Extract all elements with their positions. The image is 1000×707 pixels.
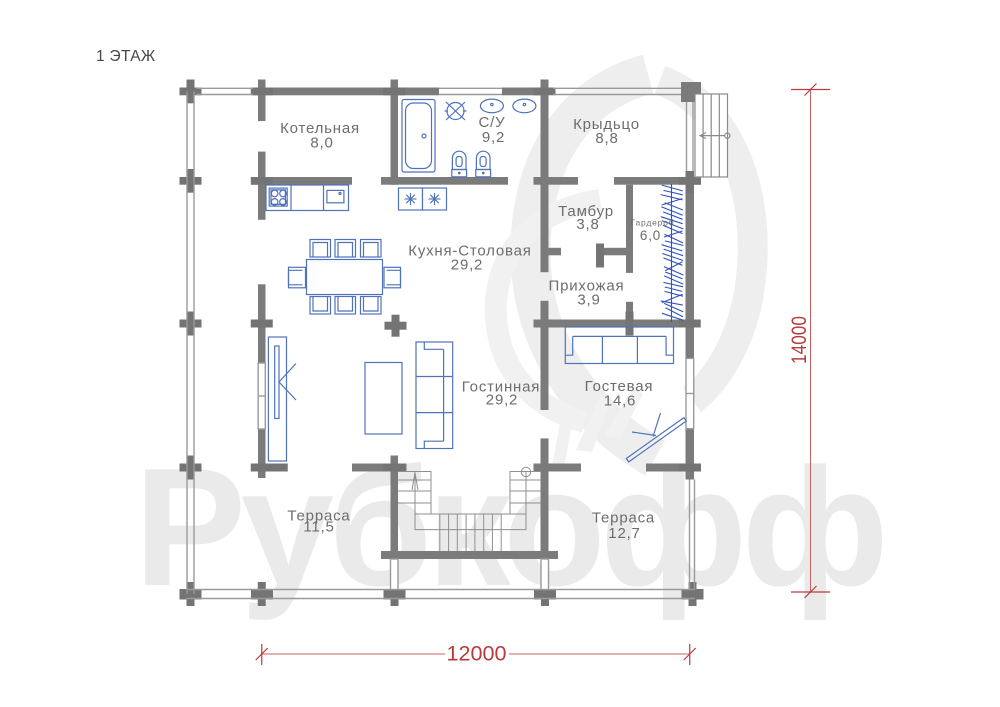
svg-text:3,9: 3,9 xyxy=(577,292,600,309)
svg-text:9,2: 9,2 xyxy=(482,129,505,146)
svg-text:12,7: 12,7 xyxy=(608,525,640,542)
svg-text:8,8: 8,8 xyxy=(595,130,618,147)
svg-text:6,0: 6,0 xyxy=(640,228,661,243)
svg-text:3,8: 3,8 xyxy=(576,216,599,233)
svg-text:Терраса: Терраса xyxy=(592,510,655,527)
svg-text:29,2: 29,2 xyxy=(486,392,518,409)
svg-text:12000: 12000 xyxy=(447,643,507,666)
svg-text:29,2: 29,2 xyxy=(451,257,483,274)
svg-text:Гардероб: Гардероб xyxy=(631,218,675,228)
svg-text:1 ЭТАЖ: 1 ЭТАЖ xyxy=(96,48,156,65)
svg-text:14000: 14000 xyxy=(788,316,811,364)
svg-text:8,0: 8,0 xyxy=(310,135,333,152)
svg-text:Рубкофф: Рубкофф xyxy=(134,433,883,621)
svg-text:14,6: 14,6 xyxy=(604,393,636,410)
svg-text:11,5: 11,5 xyxy=(303,519,334,536)
